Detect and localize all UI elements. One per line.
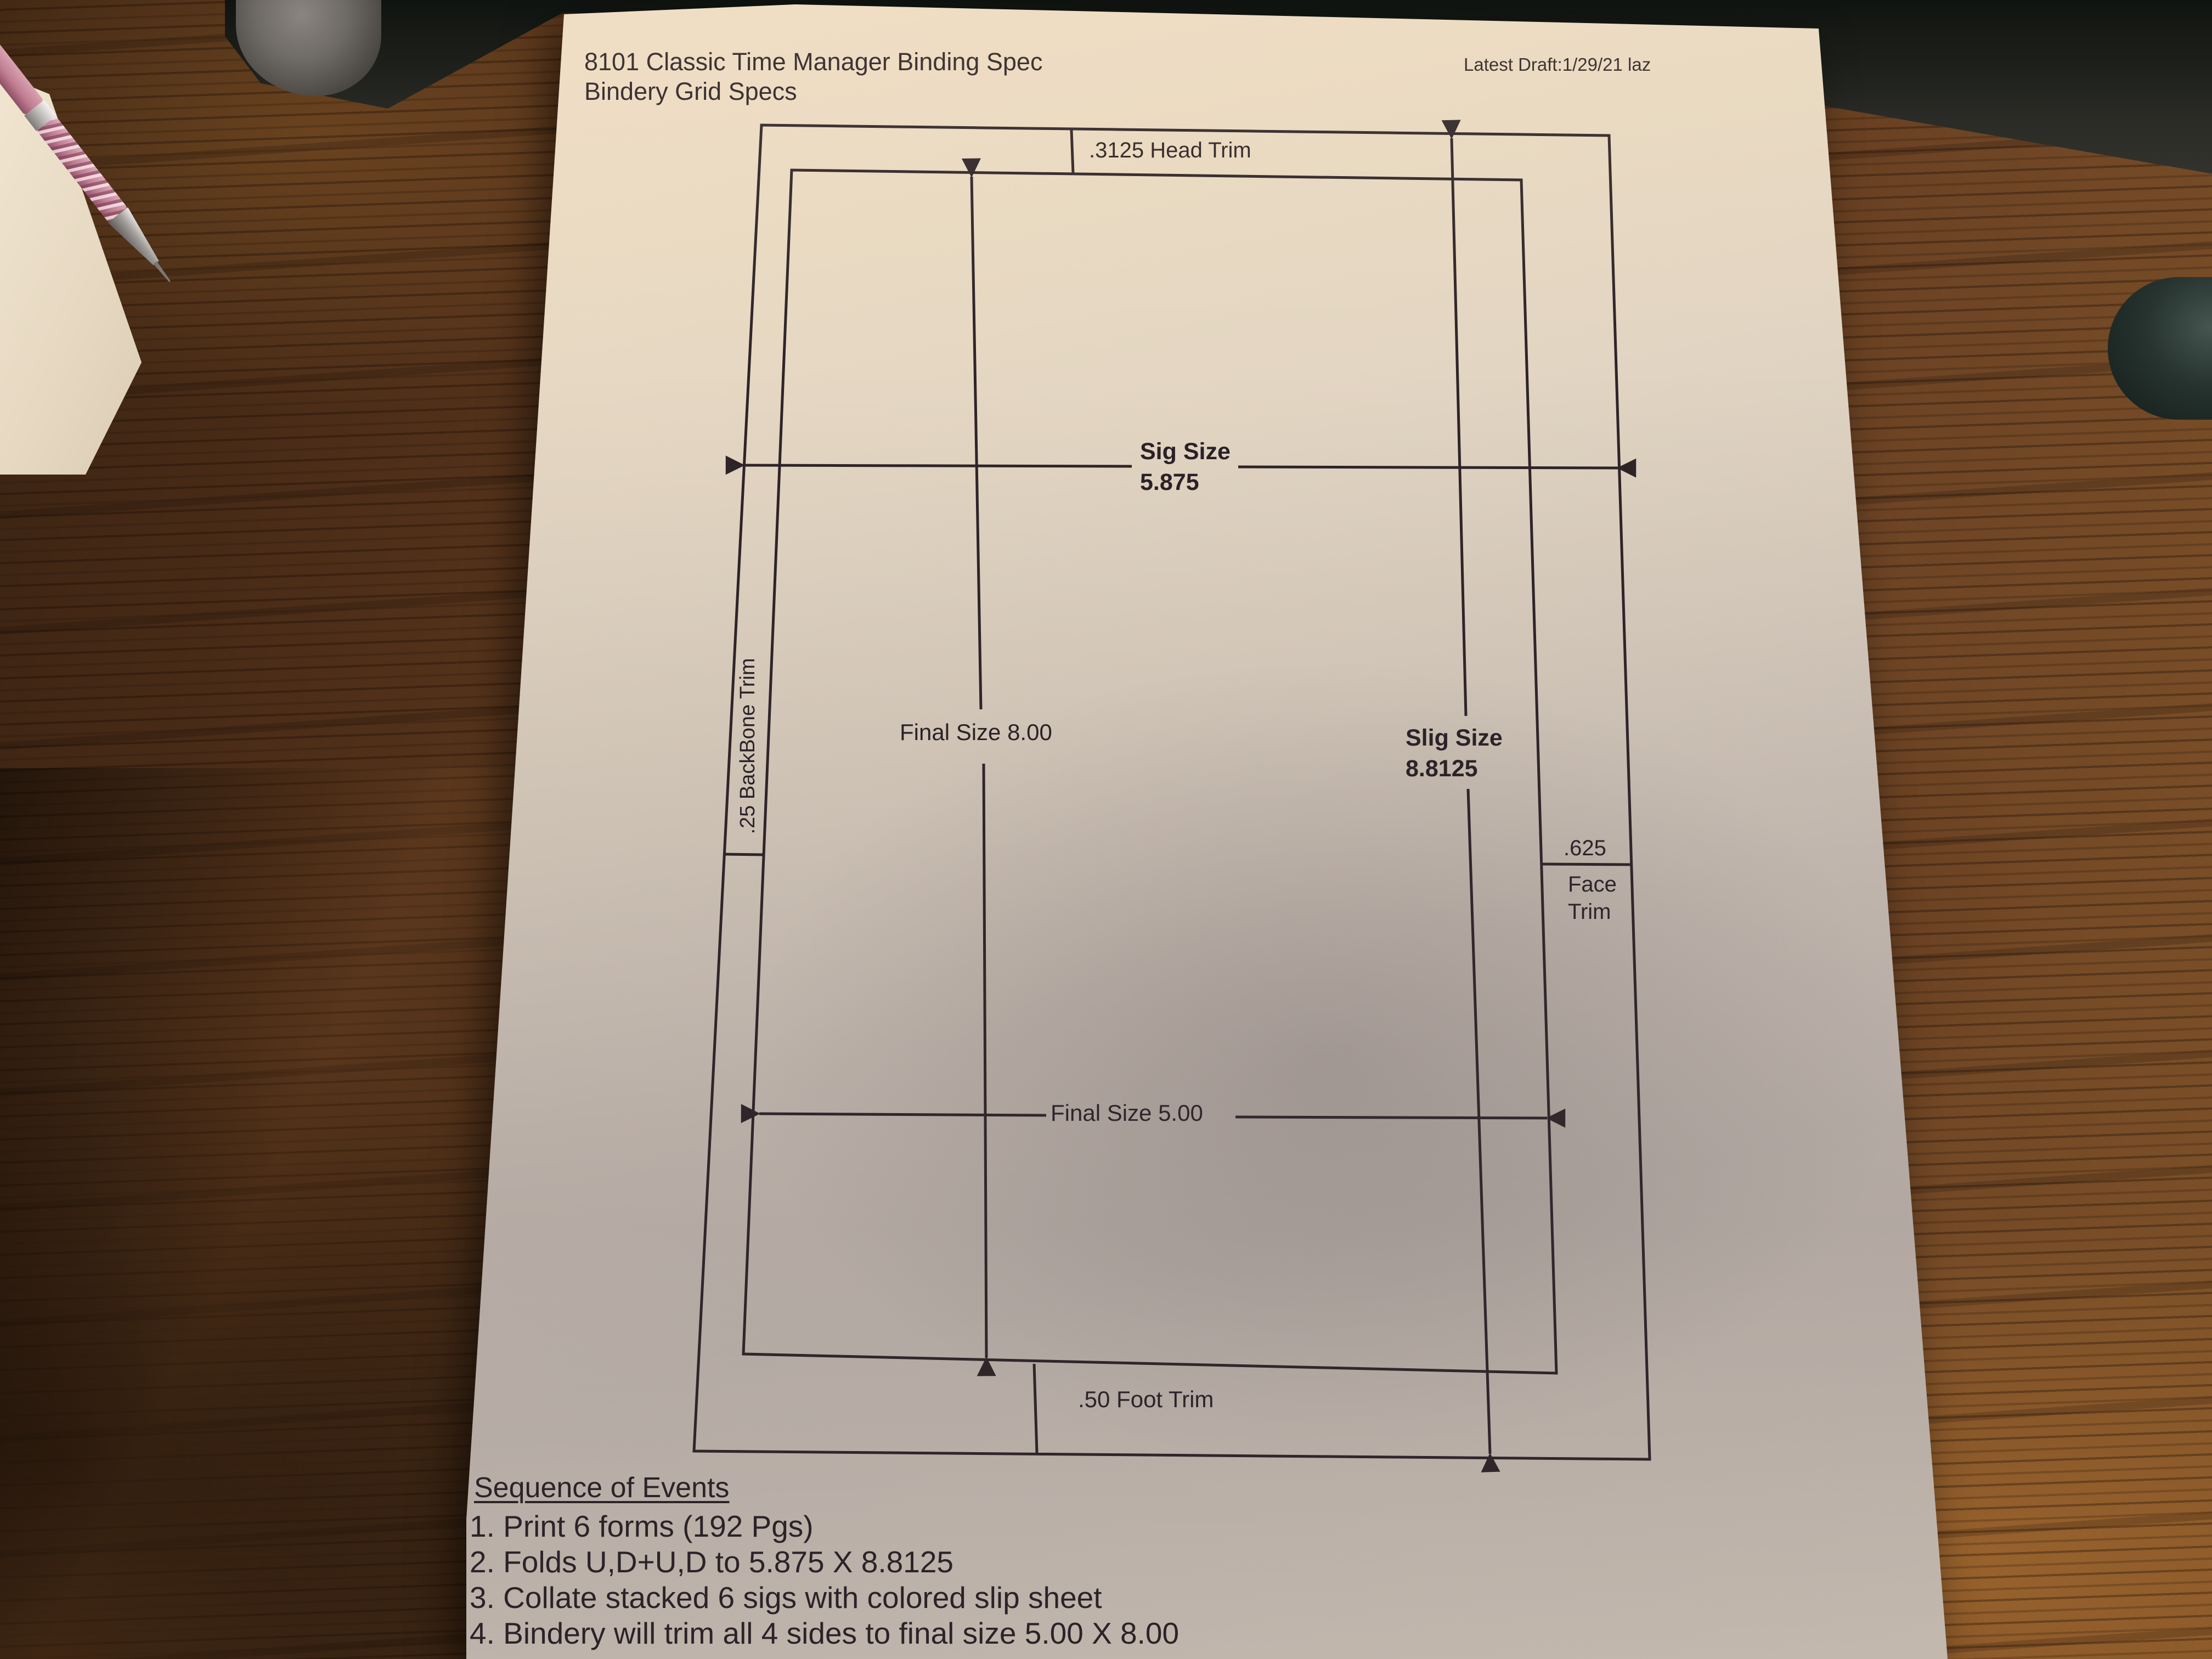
slig-size-label: Slig Size — [1406, 725, 1503, 751]
slig-size-arrow-bottom — [1468, 789, 1490, 1454]
final-height-arrow-bottom — [984, 764, 986, 1358]
sequence-item-2: 2. Folds U,D+U,D to 5.875 X 8.8125 — [470, 1545, 953, 1579]
sequence-heading: Sequence of Events — [474, 1472, 729, 1504]
sig-size-value: 5.875 — [1140, 470, 1199, 495]
slig-size-value: 8.8125 — [1406, 756, 1478, 782]
sig-size-arrow-left — [744, 465, 1132, 466]
head-trim-label: .3125 Head Trim — [1089, 138, 1251, 162]
backbone-trim-label: .25 BackBone Trim — [737, 658, 760, 834]
slig-size-arrow-top — [1452, 138, 1466, 716]
final-width-label: Final Size 5.00 — [1051, 1101, 1203, 1126]
foot-trim-label: .50 Foot Trim — [1078, 1387, 1214, 1412]
doc-title-line2: Bindery Grid Specs — [584, 78, 797, 105]
final-width-arrow-left — [759, 1114, 1046, 1115]
sequence-item-3: 3. Collate stacked 6 sigs with colored s… — [470, 1581, 1102, 1615]
pencil-lead-sleeve — [153, 261, 171, 283]
draft-note: Latest Draft:1/29/21 laz — [1464, 55, 1651, 75]
face-trim-word2: Trim — [1568, 900, 1611, 924]
sig-size-arrow-right — [1238, 467, 1618, 468]
face-trim-value: .625 — [1564, 836, 1606, 860]
spec-sheet-wrapper: 8101 Classic Time Manager Binding Spec B… — [466, 0, 1948, 1659]
head-trim-tick — [1071, 130, 1073, 173]
face-trim-word1: Face — [1568, 872, 1617, 896]
spec-sheet-paper: 8101 Classic Time Manager Binding Spec B… — [466, 0, 1948, 1659]
final-height-label: Final Size 8.00 — [900, 720, 1052, 745]
sequence-item-4: 4. Bindery will trim all 4 sides to fina… — [470, 1617, 1179, 1650]
outer-slig-rectangle — [694, 125, 1650, 1459]
sequence-item-1: 1. Print 6 forms (192 Pgs) — [470, 1510, 814, 1543]
backbone-trim-tick — [724, 854, 764, 855]
final-width-arrow-right — [1235, 1117, 1547, 1118]
face-trim-tick — [1542, 864, 1632, 865]
sig-size-label: Sig Size — [1140, 439, 1231, 465]
foot-trim-tick — [1034, 1364, 1037, 1453]
final-height-arrow-top — [972, 177, 981, 709]
doc-title-line1: 8101 Classic Time Manager Binding Spec — [584, 48, 1042, 76]
